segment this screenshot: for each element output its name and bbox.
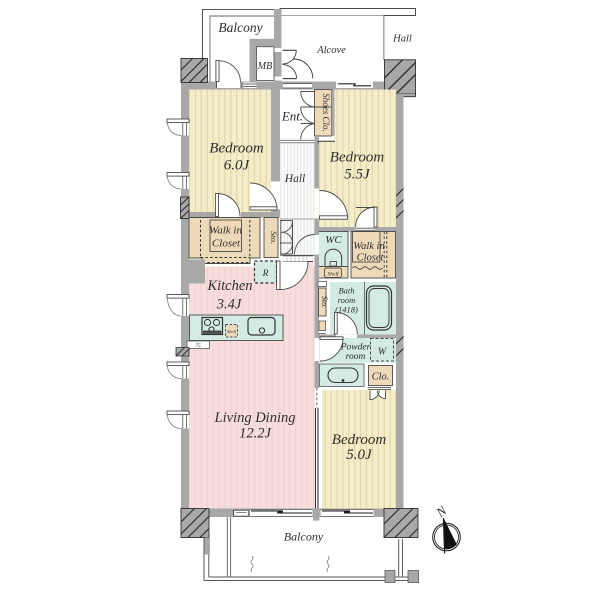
svg-text:Alcove: Alcove [316,45,346,56]
svg-text:Closet: Closet [357,253,385,264]
svg-text:3.4J: 3.4J [216,297,242,313]
svg-text:Shelf: Shelf [328,271,340,278]
svg-text:MB: MB [257,61,272,72]
svg-text:Sto.: Sto. [269,231,279,244]
svg-text:Shoes Clo.: Shoes Clo. [321,93,331,132]
svg-text:Hall: Hall [284,173,305,185]
svg-text:Bedroom: Bedroom [332,432,387,448]
svg-text:75: 75 [195,343,201,349]
svg-text:Shelf: Shelf [227,329,237,334]
svg-text:Powder: Powder [340,343,371,353]
svg-text:12.2J: 12.2J [239,426,271,442]
svg-text:Bath: Bath [338,286,354,296]
svg-text:R: R [262,269,269,279]
svg-text:Walk in: Walk in [353,241,384,252]
svg-text:Sto.: Sto. [320,296,329,308]
svg-text:Ent.: Ent. [281,109,303,124]
svg-text:room: room [338,295,356,305]
svg-text:6.0J: 6.0J [224,158,251,174]
svg-text:Clo.: Clo. [372,372,390,383]
svg-text:Balcony: Balcony [218,20,262,35]
svg-text:room: room [346,352,366,362]
svg-text:Bedroom: Bedroom [330,150,385,166]
svg-text:5.0J: 5.0J [346,447,373,463]
svg-text:Closet: Closet [212,238,241,250]
svg-text:WC: WC [325,234,342,246]
svg-text:Hall: Hall [392,34,412,45]
svg-text:Walk in: Walk in [209,225,242,237]
svg-text:5.5J: 5.5J [344,167,371,183]
svg-text:Kitchen: Kitchen [206,278,252,294]
svg-text:Bedroom: Bedroom [209,141,264,157]
svg-text:Balcony: Balcony [284,530,324,544]
svg-text:Living Dining: Living Dining [214,410,296,426]
